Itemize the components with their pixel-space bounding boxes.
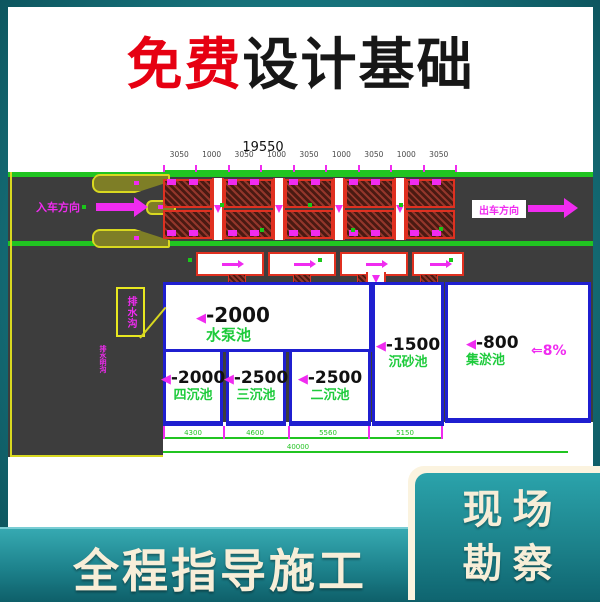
bottom-dimension-line [163, 437, 443, 439]
page: { "title": { "highlight": "免费", "rest": … [0, 0, 600, 600]
pool-name: 三沉池 [236, 388, 275, 404]
drain-channel-vertical [273, 178, 285, 240]
pool-sand-settling: ◀-1500 沉砂池 [372, 282, 444, 426]
drain-callout-label: 排水沟 [123, 296, 138, 329]
drain-channel-vertical [394, 178, 406, 240]
top-dimension-segments: 305010003050100030501000305010003050 [163, 150, 455, 159]
pool-depth: -2500 [234, 368, 288, 388]
bottom-total-dimension-line [163, 451, 568, 453]
page-title: 免费设计基础 [8, 35, 593, 97]
pool-name: 沉砂池 [388, 355, 427, 371]
pool-third-settling: ◀-2500 三沉池 [226, 349, 286, 426]
bottom-dim-total: 40000 [263, 443, 333, 451]
wash-bay [163, 178, 212, 240]
promo-card: 现场 勘察 [415, 473, 600, 600]
dim-segment-label: 3050 [228, 150, 260, 159]
dim-segment-label: 1000 [390, 150, 422, 159]
dim-segment-label: 1000 [260, 150, 292, 159]
entry-direction-label: 入车方向 [36, 199, 80, 215]
pool-depth: -2000 [171, 368, 225, 388]
wash-bay [406, 178, 455, 240]
dim-segment-label: 3050 [423, 150, 455, 159]
title-highlight: 免费 [127, 33, 243, 98]
pool-name: 集淤池 [466, 353, 505, 369]
pool-second-settling: ◀-2500 二沉池 [289, 349, 371, 426]
slope-label: ⇐8% [531, 343, 567, 359]
pool-silt-collecting: ◀-800 集淤池 [445, 282, 591, 423]
site-ground-left [8, 422, 163, 457]
bottom-dim-1: 4600 [233, 429, 277, 437]
depth-marker-icon: ◀ [224, 372, 234, 387]
exit-direction-label: 出车方向 [472, 200, 526, 218]
pool-pump: ◀-2000 水泵池 [163, 282, 372, 352]
pool-name: 二沉池 [310, 388, 349, 404]
drain-callout-box: 排水沟 [116, 287, 145, 337]
pool-depth: -2000 [206, 303, 270, 327]
entry-arrow-head [134, 197, 148, 217]
wash-bay [285, 178, 334, 240]
promo-line2: 勘察 [453, 537, 563, 591]
entry-arrow [96, 203, 134, 211]
exit-arrow-head [564, 198, 578, 218]
depth-marker-icon: ◀ [298, 372, 308, 387]
bottom-dim-3: 5150 [383, 429, 427, 437]
drain-channel [412, 252, 464, 276]
bottom-dim-2: 5560 [306, 429, 350, 437]
depth-marker-icon: ◀ [161, 372, 171, 387]
pool-depth: -800 [476, 333, 519, 353]
pool-name: 四沉池 [173, 388, 212, 404]
pool-depth: -2500 [308, 368, 362, 388]
wash-bay [224, 178, 273, 240]
site-boundary-line-bottom [10, 455, 163, 457]
pool-name: 水泵池 [196, 326, 251, 344]
pool-fourth-settling: ◀-2000 四沉池 [163, 349, 223, 426]
site-boundary-line [10, 172, 12, 457]
wash-bay-row [163, 178, 455, 240]
banner-slogan: 全程指导施工 [30, 535, 410, 601]
depth-marker-icon: ◀ [466, 337, 476, 352]
drain-callout-small: 排水明沟 [98, 345, 108, 397]
dim-segment-label: 3050 [293, 150, 325, 159]
dim-segment-label: 3050 [358, 150, 390, 159]
depth-marker-icon: ◀ [376, 339, 386, 354]
pool-depth: -1500 [386, 335, 440, 355]
depth-marker-icon: ◀ [196, 311, 206, 326]
drain-channel [268, 252, 336, 276]
dim-segment-label: 1000 [325, 150, 357, 159]
drain-channel-vertical [212, 178, 224, 240]
dim-segment-label: 3050 [163, 150, 195, 159]
exit-arrow [528, 205, 564, 212]
promo-line1: 现场 [453, 483, 563, 537]
drain-channel-vertical [333, 178, 345, 240]
bottom-dim-0: 4300 [171, 429, 215, 437]
title-rest: 设计基础 [243, 33, 475, 98]
drawing-card: 免费设计基础 19550 305010003050100030501000305… [8, 7, 593, 527]
drain-channel [196, 252, 264, 276]
dim-segment-label: 1000 [195, 150, 227, 159]
